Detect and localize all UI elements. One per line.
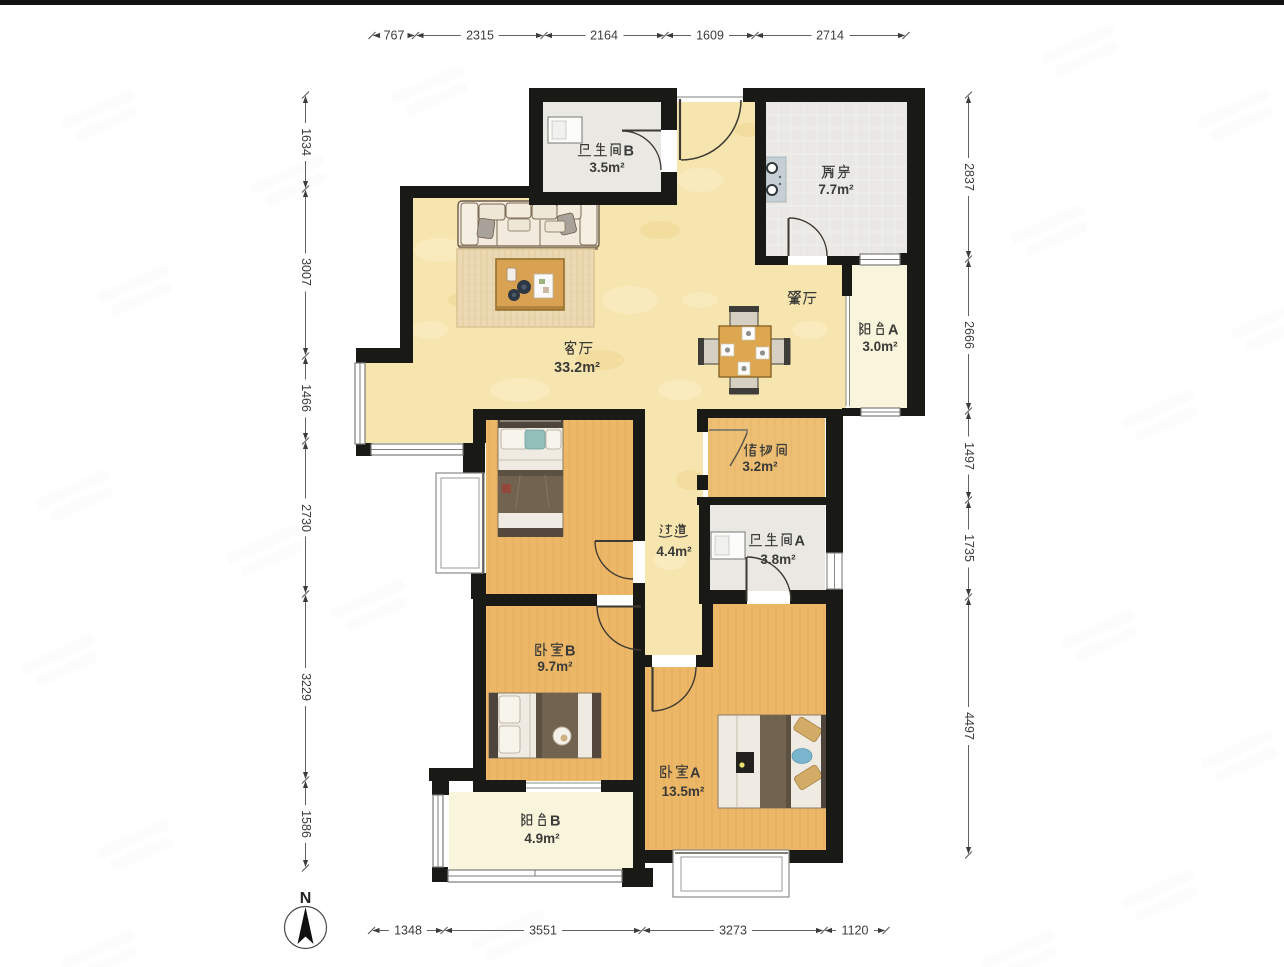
svg-text:9.7m²: 9.7m²: [537, 659, 573, 674]
svg-text:2315: 2315: [466, 29, 494, 43]
svg-text:2666: 2666: [962, 321, 976, 349]
svg-text:3551: 3551: [529, 924, 557, 938]
svg-text:3007: 3007: [299, 258, 313, 286]
svg-text:4.4m²: 4.4m²: [656, 544, 692, 559]
svg-text:33.2m²: 33.2m²: [554, 360, 600, 376]
svg-text:3.0m²: 3.0m²: [862, 339, 898, 354]
svg-text:7.7m²: 7.7m²: [818, 182, 854, 197]
svg-text:N: N: [300, 890, 312, 907]
svg-text:1609: 1609: [696, 29, 724, 43]
svg-text:1586: 1586: [299, 810, 313, 838]
svg-text:2164: 2164: [590, 29, 618, 43]
svg-text:3.5m²: 3.5m²: [589, 160, 625, 175]
svg-text:1497: 1497: [962, 442, 976, 470]
svg-text:A: A: [888, 323, 899, 339]
svg-text:2730: 2730: [299, 504, 313, 532]
svg-text:4.9m²: 4.9m²: [524, 831, 560, 846]
svg-text:3.2m²: 3.2m²: [742, 459, 778, 474]
svg-text:1735: 1735: [962, 534, 976, 562]
svg-text:3.8m²: 3.8m²: [760, 552, 796, 567]
svg-text:2837: 2837: [962, 163, 976, 191]
svg-text:4497: 4497: [962, 712, 976, 740]
svg-text:B: B: [550, 814, 560, 830]
svg-text:1466: 1466: [299, 384, 313, 412]
svg-text:1348: 1348: [394, 924, 422, 938]
svg-text:A: A: [690, 766, 701, 782]
svg-text:2714: 2714: [816, 29, 844, 43]
svg-text:1634: 1634: [299, 128, 313, 156]
svg-text:3273: 3273: [719, 924, 747, 938]
svg-text:B: B: [624, 144, 634, 160]
svg-text:13.5m²: 13.5m²: [662, 784, 705, 799]
svg-text:1120: 1120: [842, 924, 869, 938]
svg-text:A: A: [795, 534, 806, 550]
svg-text:B: B: [565, 644, 575, 660]
svg-text:3229: 3229: [299, 673, 313, 701]
svg-text:767: 767: [384, 29, 405, 43]
